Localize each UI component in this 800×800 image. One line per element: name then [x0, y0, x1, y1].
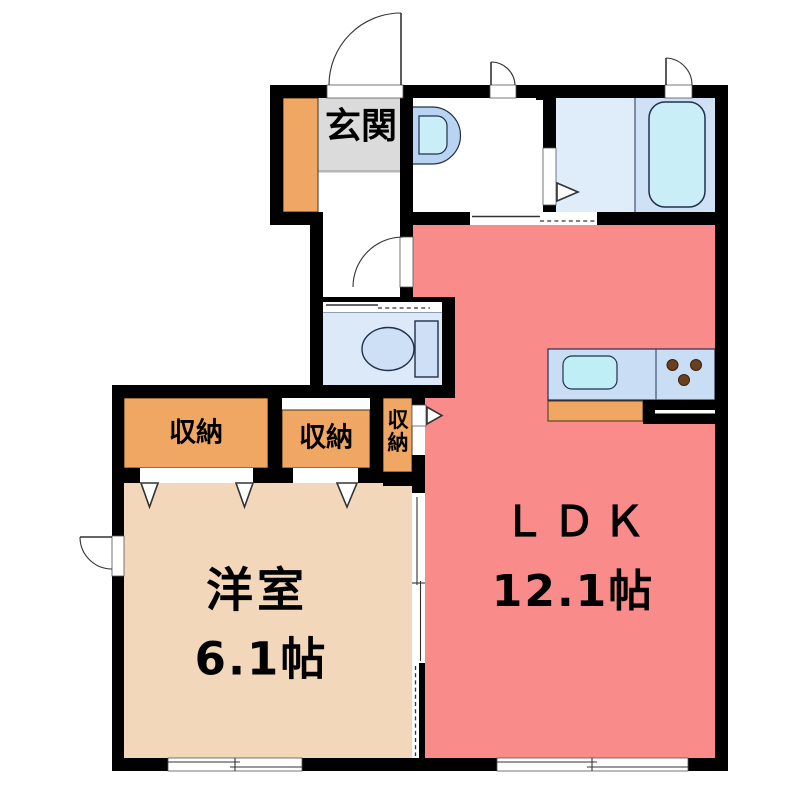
western-room-label: 洋室 — [206, 568, 308, 615]
kitchen-sink — [563, 356, 617, 389]
bathtub — [649, 102, 705, 207]
stove-burner — [667, 360, 678, 371]
genkan-label: 玄関 — [325, 109, 397, 145]
ldk-size-label: 12.1帖 — [492, 570, 655, 614]
floor-plan: 玄関 ＬＤＫ 12.1帖 洋室 6.1帖 収納 収納 収納 — [0, 0, 800, 800]
floorplan-drawing — [0, 0, 800, 800]
western-room-size-label: 6.1帖 — [195, 637, 328, 682]
washroom-window — [490, 62, 516, 98]
kitchen-lower-cabinet — [548, 401, 643, 421]
bathroom-window — [665, 58, 692, 98]
western-room-side-window — [80, 536, 124, 576]
western-room-floor — [124, 483, 412, 758]
stove-burner — [679, 375, 690, 386]
closet-3-label: 収納 — [387, 409, 409, 455]
closet-2-label: 収納 — [299, 425, 353, 452]
entrance-door — [327, 13, 403, 98]
ldk-floor — [413, 225, 715, 758]
kitchen-wall-slot — [655, 410, 715, 414]
ldk-window — [497, 758, 688, 771]
ldk-label: ＬＤＫ — [503, 501, 653, 543]
stove-burner — [691, 360, 702, 371]
toilet-tank — [415, 321, 438, 377]
shoe-cabinet — [283, 98, 318, 212]
ldk-entry-door — [353, 237, 413, 287]
western-room-window — [168, 758, 302, 771]
washroom-sliding-door — [470, 212, 597, 225]
washbasin-bowl — [419, 116, 447, 154]
closet-1-label: 収納 — [169, 420, 223, 447]
toilet-bowl — [362, 328, 414, 371]
toilet-sliding-door — [323, 302, 442, 312]
